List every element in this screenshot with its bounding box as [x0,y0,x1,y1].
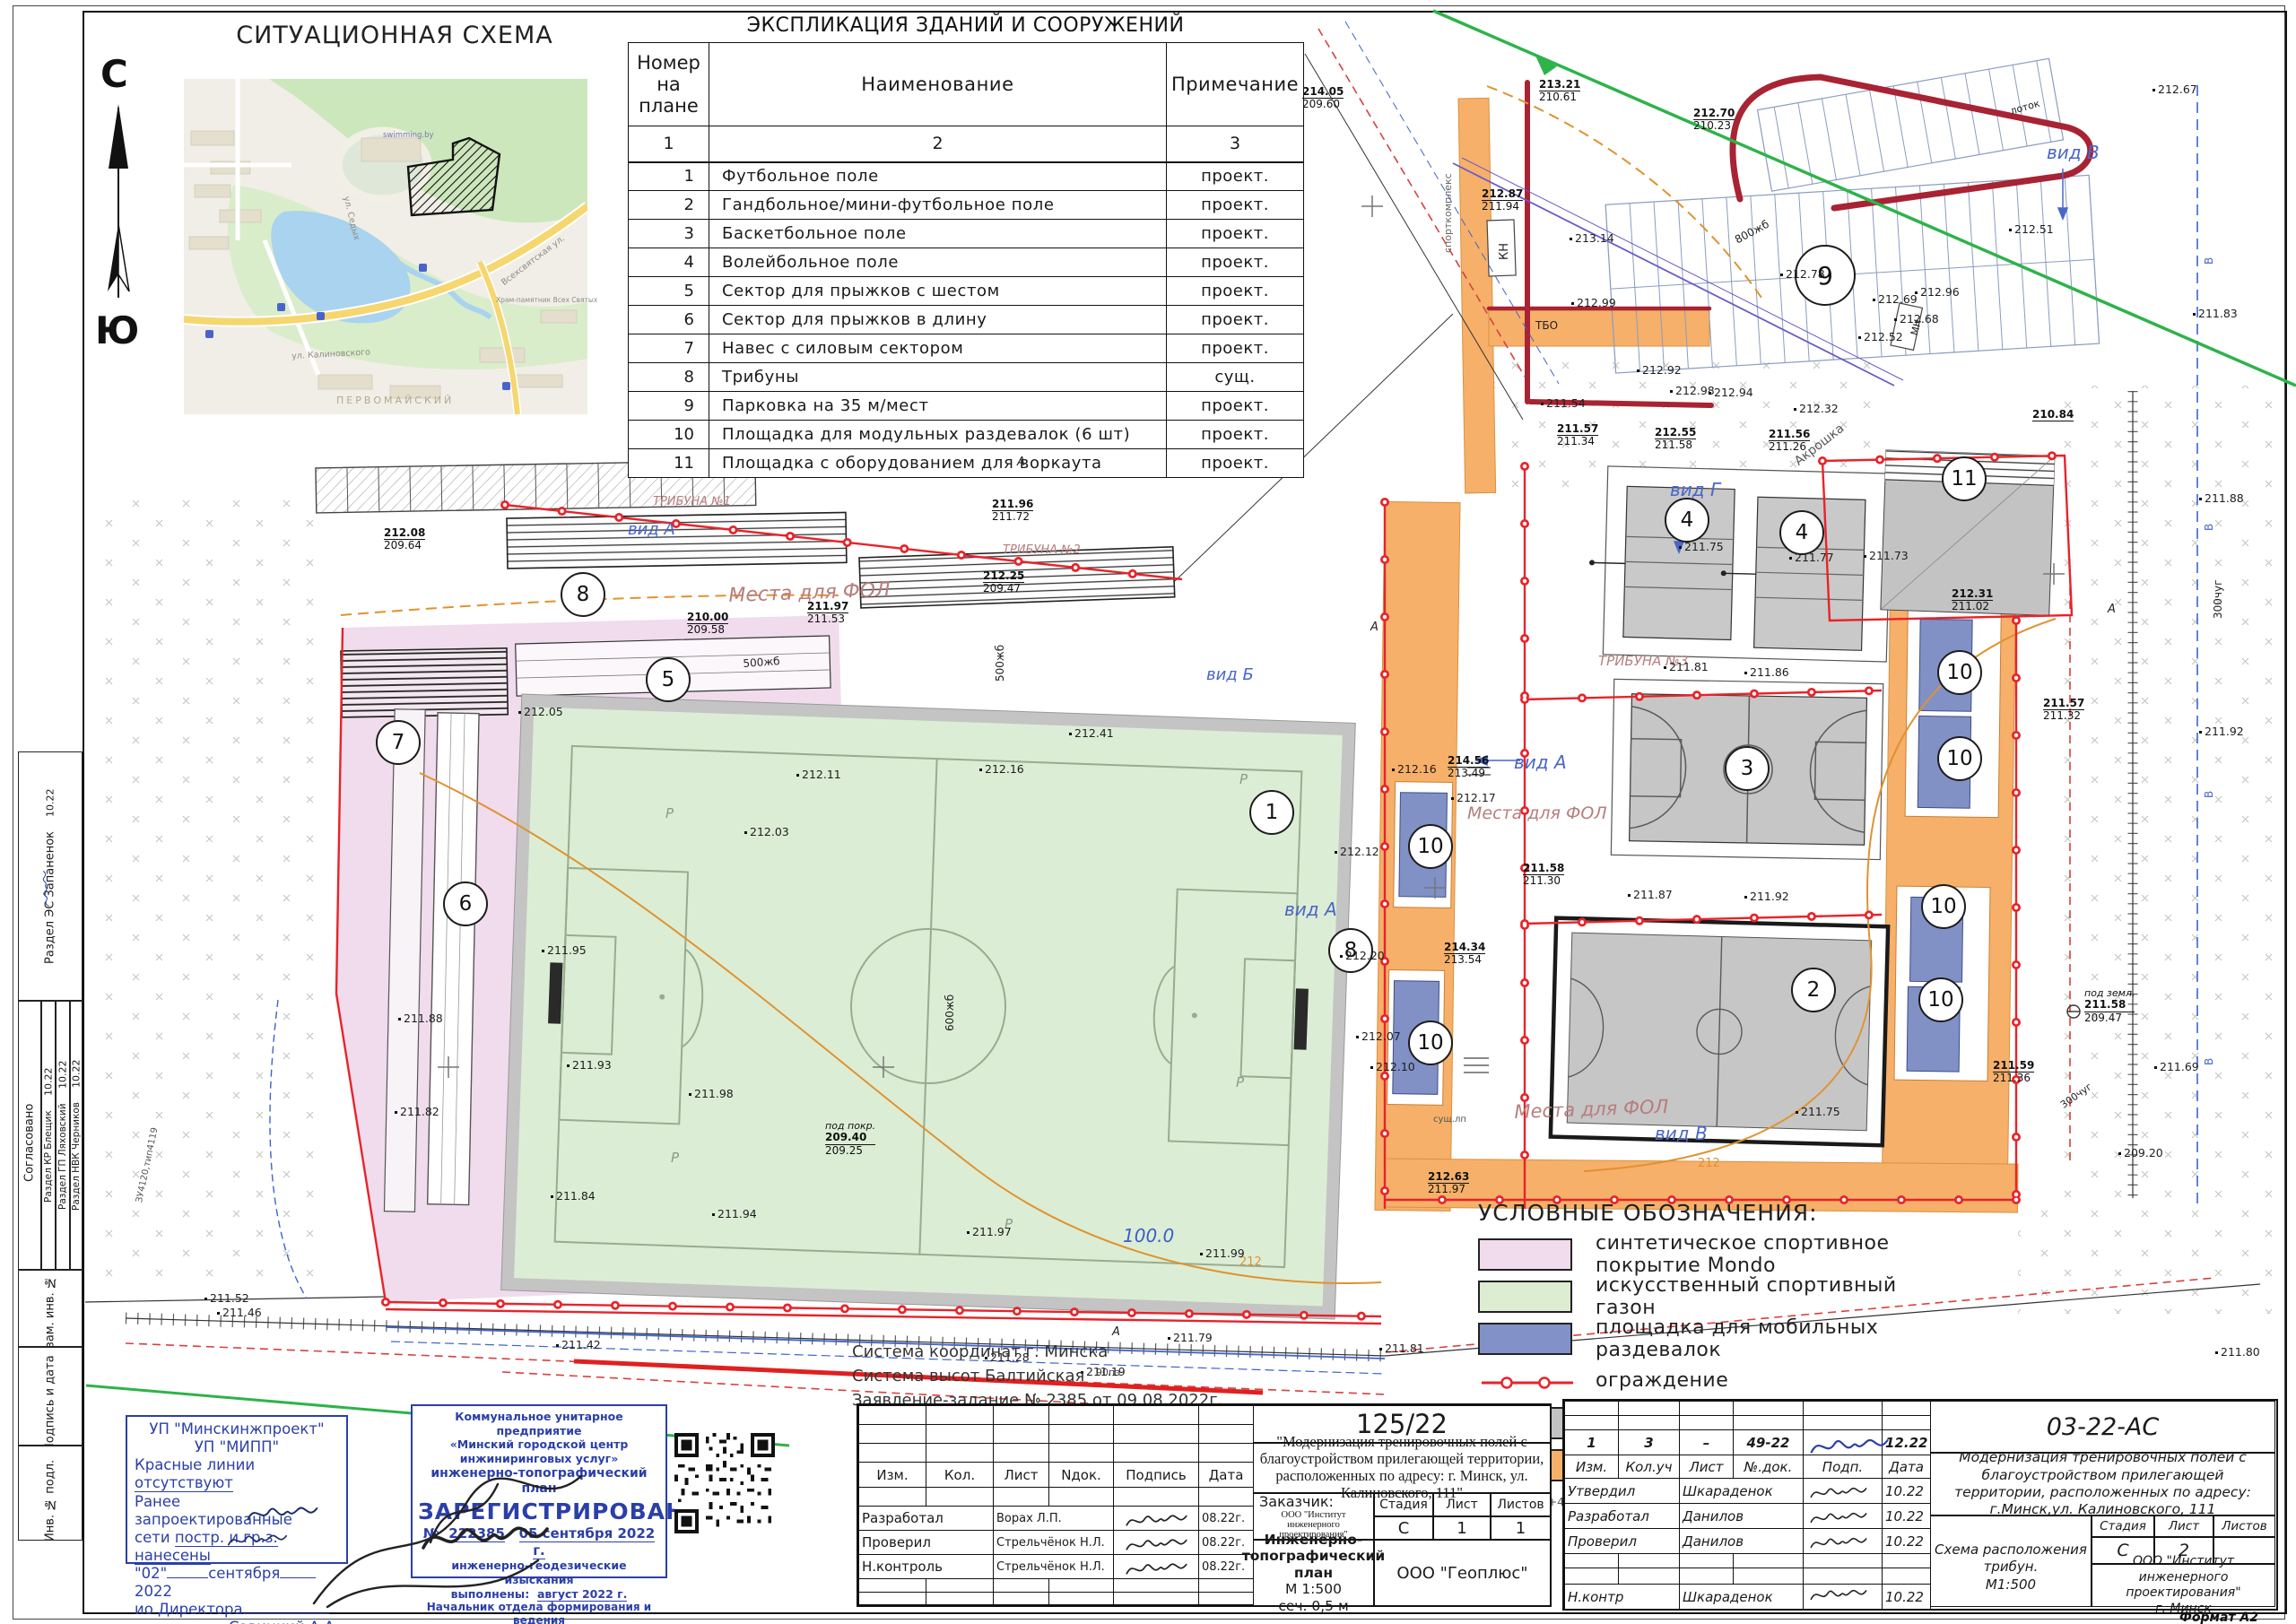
legend-fence-symbol [1478,1376,1577,1390]
col-number-1: 1 [629,126,709,162]
row-name: Футбольное поле [709,162,1167,191]
signature-large [296,1435,601,1614]
table-row: 10 Площадка для модульных раздевалок (6 … [629,421,1304,449]
row-name: Площадка с оборудованием для воркаута [709,449,1167,478]
row-note: проект. [1167,421,1304,449]
row-name: Навес с силовым сектором [709,334,1167,363]
sidebar-cell-label: Раздел ГП Ляховский [57,1103,68,1210]
document-name: Инженерно-топографический план [1242,1532,1385,1582]
legend-title: УСЛОВНЫЕ ОБОЗНАЧЕНИЯ: [1478,1200,1900,1226]
table-row: 5 Сектор для прыжков с шестом проект. [629,277,1304,306]
explication-table: Номер на плане Наименование Примечание 1… [628,42,1304,478]
legend-item-label: синтетическое спортивное покрытие Mondo [1596,1232,1900,1277]
col-header-name: Наименование [709,43,1167,126]
document-section: сеч. 0,5 м [1278,1598,1348,1615]
col-header-number: Номер на плане [629,43,709,126]
row-note: проект. [1167,449,1304,478]
sidebar-cell: Подпись и дата [18,1347,83,1446]
sheet-header: Лист [1433,1493,1491,1516]
stamp1-director-name: Савицкий А.А. [135,1619,339,1624]
row-number: 4 [629,248,709,277]
legend-item-label: ограждение [1596,1369,1728,1392]
drawing-sheet: Раздел ЭС Запаненок 10.22 Согласовано Ра… [0,0,2296,1624]
right-org-cell: ООО "Институт инженерного проектирования… [2092,1564,2275,1607]
sidebar-cell-label: Согласовано [23,1103,37,1181]
signature-corrector [226,1528,289,1551]
change-doc: 49-22 [1734,1430,1804,1455]
signature-center-1 [1118,1508,1195,1532]
right-doc-scale: М1:500 [1986,1576,2036,1594]
document-scale: М 1:500 [1285,1581,1342,1598]
role-approved: Утвердил [1565,1479,1680,1504]
rcol-list: Лист [1680,1455,1734,1479]
sidebar-cell-date: 10.22 [57,1061,69,1090]
col-list: Лист [994,1463,1049,1488]
surveyor-org: ООО "Геоплюс" [1374,1540,1551,1606]
signature-sidebar [0,870,96,908]
row-number: 6 [629,306,709,334]
title-block-center: Изм. Кол. Лист Nдок. Подпись Дата Разраб… [857,1403,1552,1607]
drawing-code: 03-22-АС [1930,1401,2275,1453]
rsheet-header: Лист [2154,1515,2213,1537]
situational-map: ул. Калиновского Всехсвятская ул. ул. Се… [184,79,587,414]
row-number: 3 [629,220,709,248]
rcol-koluch: Кол.уч [1619,1455,1680,1479]
legend-swatch [1478,1238,1572,1271]
table-row: 8 Трибуны сущ. [629,363,1304,392]
name-rchecked: Данилов [1680,1529,1804,1554]
col-kol: Кол. [926,1463,994,1488]
row-number: 9 [629,392,709,421]
right-org-name: ООО "Институт инженерного проектирования… [2092,1554,2274,1602]
compass-south-label: Ю [95,308,139,352]
row-name: Сектор для прыжков с шестом [709,277,1167,306]
row-note: проект. [1167,248,1304,277]
explication-table-title: ЭКСПЛИКАЦИЯ ЗДАНИЙ И СООРУЖЕНИЙ [628,14,1303,42]
situational-map-graphic [184,79,587,414]
sidebar-cell-label: Подпись и дата [44,1355,57,1446]
coord-line-1: Система координат г. Минска [852,1340,1222,1364]
sidebar-cell: Взам. инв. № [18,1270,83,1347]
table-row: 7 Навес с силовым сектором проект. [629,334,1304,363]
legend-item-label: искусственный спортивный газон [1596,1274,1900,1319]
coordinate-system-note: Система координат г. Минска Система высо… [852,1340,1222,1412]
row-name: Сектор для прыжков в длину [709,306,1167,334]
sidebar-cell-label: Взам. инв. № [44,1275,57,1347]
col-number-2: 2 [709,126,1167,162]
format-label: Формат А2 [2179,1611,2258,1624]
sidebar-cell: Раздел КР Блещик 10.22 [41,1001,56,1270]
row-number: 2 [629,191,709,220]
col-data: Дата [1199,1463,1254,1488]
signature-change-blue [1808,1426,1891,1465]
customer-label: Заказчик: [1259,1493,1334,1510]
signature-rchecked [1806,1532,1871,1553]
row-number: 11 [629,449,709,478]
sidebar-cell: Инв. № подл. [18,1446,83,1541]
scheme-title: СИТУАЦИОННАЯ СХЕМА [206,22,583,49]
name-developed: Ворах Л.П. [994,1507,1114,1531]
legend-swatch [1478,1281,1572,1313]
row-note: проект. [1167,306,1304,334]
role-ncontrol: Н.контроль [859,1555,994,1579]
date-developed: 08.22г. [1199,1507,1254,1531]
change-list: – [1680,1430,1734,1455]
date-approved: 10.22 [1883,1479,1931,1504]
role-rdeveloped: Разработал [1565,1504,1680,1529]
map-street-label: Храм-памятник Всех Святых [496,296,597,304]
change-num: 1 [1565,1430,1619,1455]
coord-line-2: Система высот Балтийская [852,1364,1222,1388]
football-field [501,694,1356,1319]
sidebar-cell-label: Инв. № подл. [44,1459,57,1541]
rcol-izm: Изм. [1565,1455,1619,1479]
legend-item-label: площадка для мобильных раздевалок [1596,1316,1900,1361]
date-rchecked: 10.22 [1883,1529,1931,1554]
sidebar-cell-date: 10.22 [45,788,57,817]
name-checked: Стрельчёнок Н.Л. [994,1531,1114,1555]
basketball-court [1611,679,1883,859]
rstage-header: Стадия [2092,1515,2154,1537]
legend-item: искусственный спортивный газон [1478,1275,1900,1317]
col-izm: Изм. [859,1463,926,1488]
rsheets-header: Листов [2213,1515,2275,1537]
compass-north-label: С [100,52,128,96]
name-approved: Шкараденок [1680,1479,1804,1504]
map-street-label: swimming.by [383,131,434,140]
name-ncontrol: Стрельчёнок Н.Л. [994,1555,1114,1579]
stamp2-h1: Коммунальное унитарное предприятие [418,1410,660,1437]
table-row: 2 Гандбольное/мини-футбольное поле проек… [629,191,1304,220]
stage-header: Стадия [1374,1493,1433,1516]
col-number-3: 3 [1167,126,1304,162]
table-row: 9 Парковка на 35 м/мест проект. [629,392,1304,421]
sidebar-cell: Раздел ГП Ляховский 10.22 [56,1001,70,1270]
project-title: "Модернизация тренировочных полей с благ… [1253,1443,1551,1493]
signature-center-2 [1118,1533,1195,1556]
row-note: проект. [1167,392,1304,421]
volleyball-courts [1587,465,1891,662]
row-name: Гандбольное/мини-футбольное поле [709,191,1167,220]
sheets-value: 1 [1491,1516,1551,1540]
row-number: 8 [629,363,709,392]
sheet-value: 1 [1433,1516,1491,1540]
row-name: Баскетбольное поле [709,220,1167,248]
row-name: Парковка на 35 м/мест [709,392,1167,421]
col-header-note: Примечание [1167,43,1304,126]
qr-code [674,1433,775,1533]
explication-table-block: ЭКСПЛИКАЦИЯ ЗДАНИЙ И СООРУЖЕНИЙ Номер на… [628,14,1303,478]
role-checked: Проверил [859,1531,994,1555]
sidebar-cell: Согласовано [18,1001,41,1270]
row-number: 5 [629,277,709,306]
right-doc-name: Схема расположения трибун. [1931,1541,2091,1576]
row-note: проект. [1167,334,1304,363]
document-name-cell: Инженерно-топографический план М 1:500 с… [1253,1540,1374,1606]
col-podpis: Подпись [1114,1463,1199,1488]
sidebar-cell-date: 10.22 [71,1060,83,1089]
date-rdeveloped: 10.22 [1883,1504,1931,1529]
row-note: проект. [1167,191,1304,220]
sidebar-cell-label: Раздел КР Блещик [43,1110,54,1203]
handball-court [1551,918,1888,1146]
row-note: проект. [1167,277,1304,306]
row-name: Площадка для модульных раздевалок (6 шт) [709,421,1167,449]
table-row: 11 Площадка с оборудованием для воркаута… [629,449,1304,478]
pole-vault-sector [516,636,831,696]
role-developed: Разработал [859,1507,994,1531]
role-rncontrol: Н.контр [1565,1585,1680,1610]
map-street-label: ПЕРВОМАЙСКИЙ [336,395,454,406]
role-rchecked: Проверил [1565,1529,1680,1554]
title-block-right: 1 3 – 49-22 12.22 Изм. Кол.уч Лист №.док… [1562,1399,2278,1611]
signature-center-3 [1118,1557,1195,1580]
workout-area [1881,450,2055,615]
signature-approved [1806,1481,1871,1503]
row-note: сущ. [1167,363,1304,392]
col-ndok: Nдок. [1049,1463,1114,1488]
legend-item: площадка для мобильных раздевалок [1478,1317,1900,1359]
signature-rncontrol [1806,1584,1871,1605]
row-number: 10 [629,421,709,449]
row-name: Волейбольное поле [709,248,1167,277]
name-rdeveloped: Данилов [1680,1504,1804,1529]
sidebar-cell: Раздел НВК Черников 10.22 [70,1001,83,1270]
legend-item: синтетическое спортивное покрытие Mondo [1478,1233,1900,1275]
compass-arrow-icon [99,99,138,305]
name-rncontrol: Шкараденок [1680,1585,1804,1610]
sheets-header: Листов [1491,1493,1551,1516]
table-row: 3 Баскетбольное поле проект. [629,220,1304,248]
date-rncontrol: 10.22 [1883,1585,1931,1610]
row-number: 1 [629,162,709,191]
signature-rdeveloped [1806,1507,1871,1528]
row-name: Трибуны [709,363,1167,392]
sidebar-cell-label: Раздел НВК Черников [71,1102,82,1211]
rcol-ndok: №.док. [1734,1455,1804,1479]
legend-swatch [1478,1323,1572,1355]
table-row: 6 Сектор для прыжков в длину проект. [629,306,1304,334]
row-note: проект. [1167,162,1304,191]
change-kol: 3 [1619,1430,1680,1455]
table-row: 1 Футбольное поле проект. [629,162,1304,191]
table-row: 4 Волейбольное поле проект. [629,248,1304,277]
row-note: проект. [1167,220,1304,248]
row-number: 7 [629,334,709,363]
sidebar-cell-date: 10.22 [43,1068,55,1097]
right-project-title: Модернизация тренировочных полей с благо… [1930,1453,2275,1515]
right-doc-cell: Схема расположения трибун. М1:500 [1930,1515,2092,1607]
